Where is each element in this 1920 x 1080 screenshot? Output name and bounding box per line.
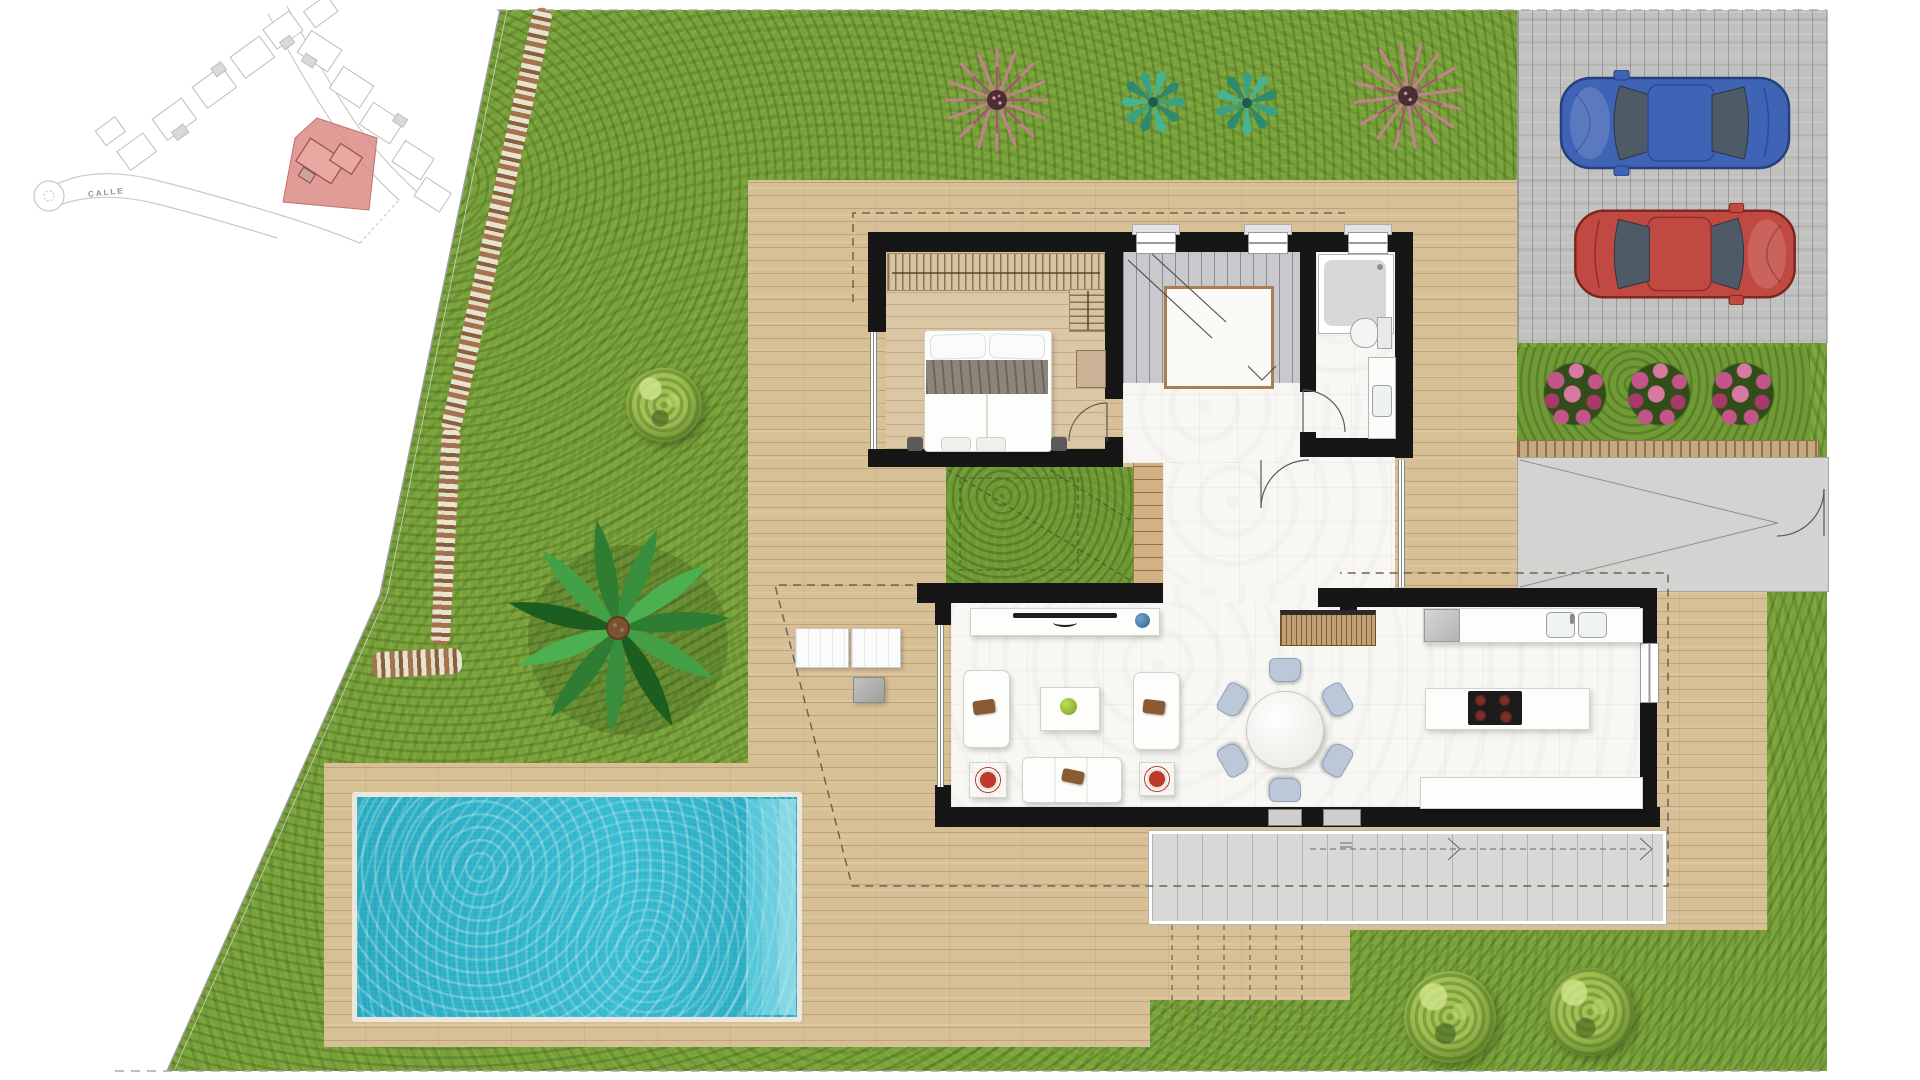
blue-vase (1135, 613, 1150, 628)
sink-faucet (1570, 614, 1574, 624)
toilet-bowl (1350, 318, 1378, 348)
inner-courtyard (946, 467, 1133, 583)
tv-stand (1053, 618, 1077, 627)
sliding-door-hall-east (1398, 460, 1405, 587)
stone-path-lower (371, 648, 462, 679)
dining-chair (1269, 778, 1301, 802)
hob-burner (1499, 695, 1510, 706)
sun-lounger (851, 628, 901, 668)
terrace-door-panel (1323, 809, 1361, 826)
sink-basin (1578, 612, 1607, 638)
hall-floor-lower (1163, 463, 1395, 590)
shower-drain (1377, 264, 1383, 270)
service-shaft (1076, 350, 1106, 388)
fridge (1424, 609, 1460, 642)
wardrobe-return (1069, 289, 1105, 332)
stair-void (1164, 286, 1274, 389)
foot-cushion (976, 437, 1006, 452)
hob-burner (1500, 711, 1512, 723)
flower-clump (1709, 360, 1777, 428)
wall-stair-bath (1300, 252, 1316, 392)
side-table-right (1139, 762, 1175, 796)
bed-pillow (989, 333, 1046, 360)
terrace-door-panel (1268, 809, 1302, 826)
green-bowl (1060, 698, 1077, 715)
entrance-ramp (1517, 457, 1829, 592)
hob-burner (1475, 695, 1486, 706)
courtyard-steps (1133, 462, 1165, 585)
red-car (1566, 203, 1804, 305)
side-table-left (969, 762, 1007, 798)
hob-burner (1475, 710, 1486, 721)
flower-clump (1541, 360, 1609, 428)
round-bush-south-right (1546, 968, 1634, 1056)
window-stair-right (1248, 232, 1288, 254)
sun-lounger (795, 628, 849, 668)
pool-steps (746, 799, 796, 1015)
wall-living-west-stub-s (935, 785, 951, 807)
nightstand (907, 437, 923, 451)
site-plan-canvas: CALLE (0, 0, 1920, 1080)
wall-bedroom-east-stub (1105, 437, 1123, 467)
dining-table (1246, 691, 1324, 769)
sliding-door-living-west (937, 625, 944, 787)
round-bush-south-left (1404, 971, 1496, 1063)
window-bathroom (1348, 232, 1388, 254)
wall-living-west-stub-n (935, 603, 951, 625)
wall-east-upper (1395, 232, 1413, 458)
window-kitchen-east (1640, 643, 1659, 703)
armchair-pillow (1142, 699, 1166, 716)
wall-courtyard-south (917, 583, 1163, 603)
wardrobe (887, 253, 1105, 291)
wall-bedroom-east (1105, 232, 1123, 399)
inset-houses (95, 0, 451, 212)
sliding-door-bedroom-west (870, 332, 877, 449)
wall-west-upper (868, 232, 886, 332)
window-stair-left (1136, 232, 1176, 254)
foot-cushion (941, 437, 971, 452)
wall-kitchen-north (1318, 588, 1657, 607)
toilet-tank (1377, 317, 1392, 349)
washbasin (1372, 385, 1392, 417)
swimming-pool (357, 797, 797, 1017)
nightstand (1051, 437, 1067, 451)
bed-throw (926, 360, 1048, 394)
kitchen-bench (1420, 777, 1643, 809)
round-bush-west (626, 368, 702, 442)
inset-highlighted-plot (283, 118, 377, 210)
blue-car (1556, 70, 1794, 176)
flower-clump (1625, 360, 1693, 428)
kitchen-slat-cabinet (1280, 610, 1376, 646)
south-terrace (1149, 831, 1666, 924)
lounger-side-table (853, 677, 885, 703)
dining-chair (1269, 658, 1301, 682)
bed-pillow (930, 333, 987, 360)
inset-location-map (25, 0, 455, 245)
